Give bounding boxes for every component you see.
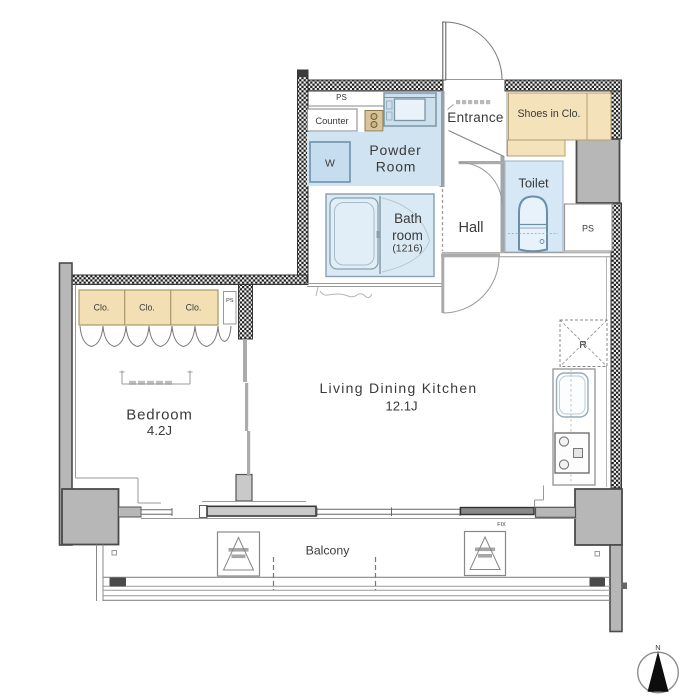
svg-text:(1216): (1216) <box>392 242 422 254</box>
svg-text:Bath: Bath <box>394 211 422 226</box>
svg-text:R: R <box>579 340 586 351</box>
svg-text:W: W <box>325 158 335 170</box>
svg-text:Toilet: Toilet <box>518 175 549 190</box>
svg-text:Living Dining Kitchen: Living Dining Kitchen <box>319 380 477 396</box>
svg-text:12.1J: 12.1J <box>385 399 417 414</box>
svg-text:Clo.: Clo. <box>94 302 110 312</box>
svg-text:Powder: Powder <box>369 142 421 158</box>
svg-text:room: room <box>392 228 423 243</box>
svg-text:Clo.: Clo. <box>186 302 202 312</box>
svg-text:Entrance: Entrance <box>447 110 503 125</box>
svg-text:N: N <box>655 643 660 652</box>
svg-text:Balcony: Balcony <box>306 544 351 558</box>
svg-text:PS: PS <box>226 298 234 304</box>
svg-text:Counter: Counter <box>315 115 348 126</box>
svg-text:Shoes in Clo.: Shoes in Clo. <box>517 108 580 120</box>
svg-text:PS: PS <box>582 223 594 233</box>
svg-text:Hall: Hall <box>459 220 484 236</box>
svg-text:Clo.: Clo. <box>139 302 155 312</box>
svg-text:FIX: FIX <box>497 522 506 528</box>
svg-text:PS: PS <box>336 93 347 102</box>
svg-text:Bedroom: Bedroom <box>126 407 192 424</box>
svg-text:Room: Room <box>376 159 417 175</box>
svg-text:4.2J: 4.2J <box>147 423 172 438</box>
